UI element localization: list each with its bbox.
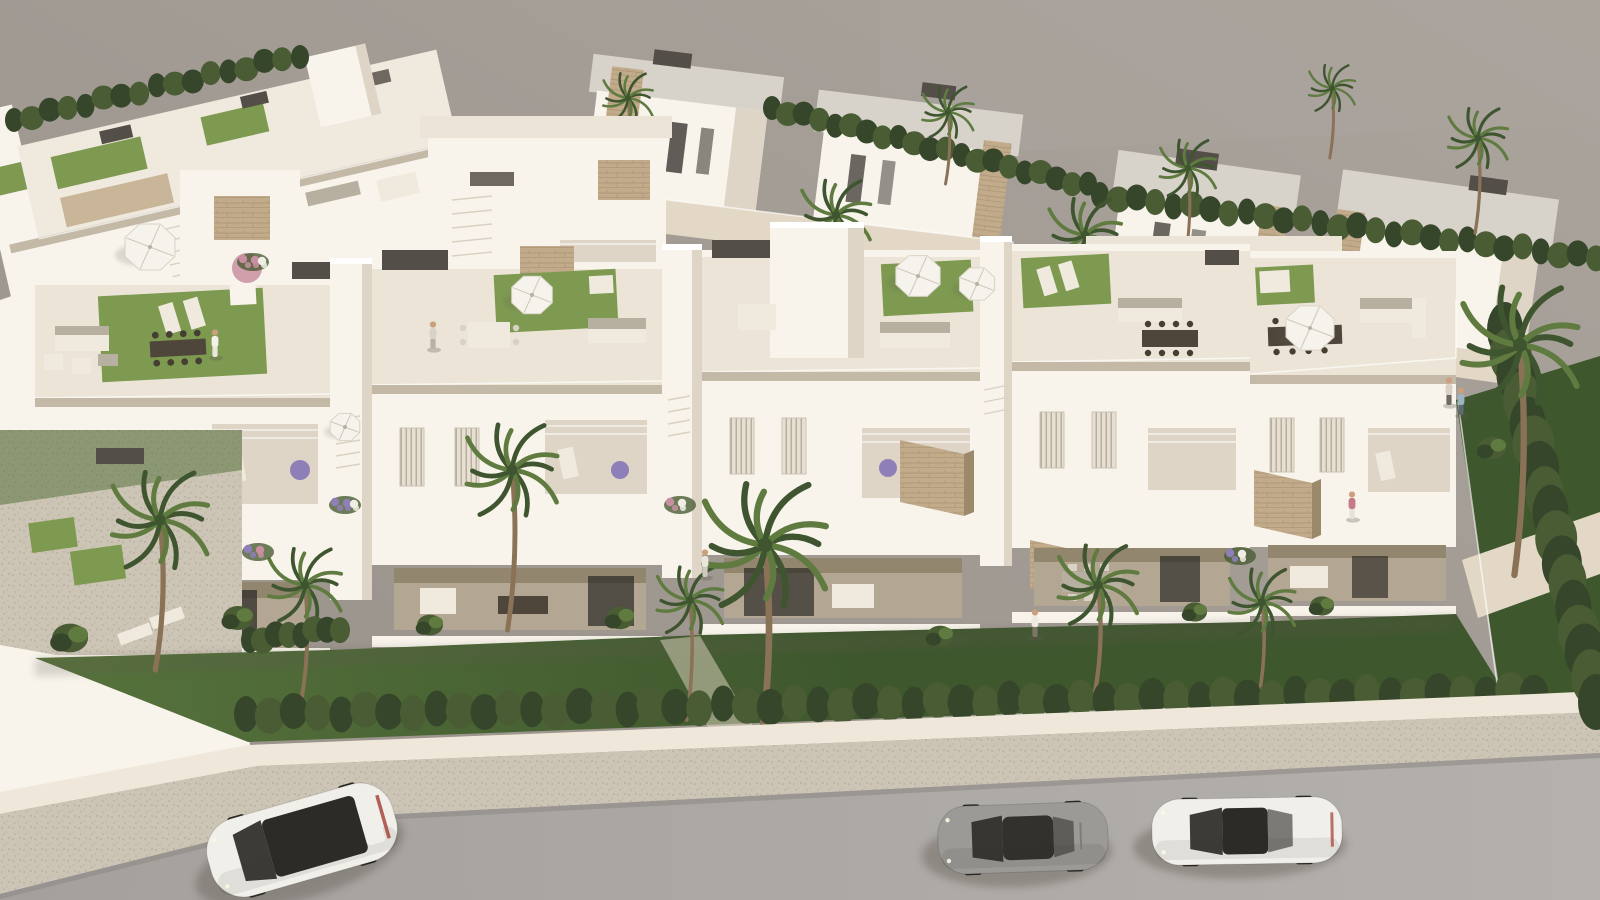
- hedge-bush: [1145, 189, 1165, 215]
- balcony: [1148, 428, 1236, 490]
- flowers: [666, 498, 674, 506]
- hedge-bush: [686, 690, 712, 726]
- person-legs: [1349, 508, 1354, 519]
- flowers: [239, 255, 247, 263]
- flowers: [244, 545, 252, 553]
- hedge-bush: [129, 82, 149, 106]
- flowers: [250, 552, 256, 558]
- person-legs: [1032, 626, 1037, 637]
- person-head: [430, 321, 436, 327]
- hedge-bush: [711, 686, 735, 722]
- person-torso: [430, 328, 437, 339]
- hedge-bush: [948, 684, 976, 720]
- person-head: [1349, 491, 1355, 497]
- car-white-sedan: [1132, 795, 1346, 881]
- hedge-bush: [757, 689, 785, 725]
- roof-lawn: [1021, 254, 1111, 309]
- person-legs: [702, 566, 707, 577]
- hedge-bush: [852, 683, 880, 719]
- hedge-bush: [902, 687, 926, 723]
- hedge-bush: [330, 617, 350, 643]
- flowers: [1232, 556, 1238, 562]
- roof-pergola: [712, 240, 770, 258]
- person-torso: [1446, 384, 1453, 395]
- person-torso: [1458, 394, 1465, 405]
- roof-daybed: [738, 304, 776, 330]
- flower-bed: [237, 253, 269, 271]
- hedge-bush: [110, 84, 132, 108]
- townhouse-unit-4: [1012, 244, 1250, 623]
- hedge-bush: [1493, 235, 1515, 261]
- flower-bed: [1224, 547, 1256, 565]
- flower-bed: [242, 543, 274, 561]
- hedge-bush: [566, 688, 594, 724]
- person-head: [1032, 609, 1038, 615]
- hedge-bush: [234, 696, 258, 732]
- hedge-bush: [1439, 228, 1459, 254]
- lawn-patch: [70, 545, 126, 586]
- flowers: [331, 498, 339, 506]
- person-legs: [1446, 394, 1451, 405]
- patio-door: [1160, 556, 1200, 602]
- person-torso: [702, 556, 709, 567]
- hedge-bush: [400, 695, 426, 731]
- flowers: [245, 262, 251, 268]
- car-roof-glass: [1222, 808, 1268, 855]
- hedge-bush: [806, 687, 830, 723]
- flowers: [353, 505, 359, 511]
- hedge-bush: [1273, 207, 1295, 233]
- hedge-bush: [58, 96, 78, 120]
- hedge-bush: [1311, 210, 1329, 236]
- flowers: [345, 505, 351, 511]
- hedge-bush: [877, 685, 903, 721]
- flower-bed: [664, 496, 696, 514]
- flowers: [258, 552, 264, 558]
- hedge-bush: [1346, 212, 1368, 238]
- hedge-bush: [495, 689, 521, 725]
- person-legs: [430, 338, 435, 349]
- hedge-bush: [280, 693, 308, 729]
- flowers: [337, 505, 343, 511]
- hedge-bush: [1238, 198, 1256, 224]
- townhouse-unit-5: [1250, 251, 1456, 616]
- balcony: [545, 420, 647, 494]
- hedge-bush: [1126, 184, 1148, 210]
- hedge-bush: [1199, 196, 1221, 222]
- hedge-bush: [272, 47, 292, 71]
- person-head: [702, 549, 708, 555]
- hedge-bush: [661, 689, 689, 725]
- hedge-bush: [182, 69, 204, 93]
- shuttered-window: [1320, 418, 1344, 472]
- shuttered-window: [730, 418, 754, 474]
- car-cabin-glass: [1002, 815, 1054, 860]
- daybed: [832, 584, 874, 608]
- hedge-bush: [616, 692, 640, 728]
- shuttered-window: [1270, 418, 1294, 472]
- hedge-bush: [1458, 226, 1476, 252]
- hedge-bush: [782, 684, 808, 720]
- hedge-bush: [1513, 233, 1533, 259]
- shuttered-window: [1040, 412, 1064, 468]
- architectural-render: [0, 0, 1600, 900]
- hedge-bush: [39, 98, 61, 122]
- flowers: [1240, 556, 1246, 562]
- scene: [0, 0, 1600, 900]
- person-head: [1446, 377, 1452, 383]
- hedge-bush: [305, 695, 331, 731]
- person-torso: [1349, 498, 1356, 509]
- hedge-bush: [1219, 200, 1239, 226]
- hedge-bush: [1292, 205, 1312, 231]
- hedge-bush: [1567, 240, 1589, 266]
- hedge-bush: [591, 690, 617, 726]
- daybed: [420, 588, 456, 614]
- car-windshield: [1190, 808, 1223, 856]
- roof-ac-unit: [1205, 250, 1239, 265]
- hedge-bush: [329, 697, 353, 733]
- patio-door: [1352, 556, 1388, 598]
- hedge-bush: [1164, 193, 1182, 219]
- car-taillight: [1330, 812, 1334, 846]
- hedge-bush: [520, 691, 544, 727]
- balcony: [1368, 428, 1450, 492]
- flowers: [253, 262, 259, 268]
- car-windshield: [971, 816, 1003, 863]
- shuttered-window: [782, 418, 806, 474]
- hedge-bush: [999, 155, 1019, 179]
- hedge-bush: [1366, 217, 1386, 243]
- flowers: [680, 505, 686, 511]
- hedge-bush: [291, 45, 309, 69]
- person-head: [1458, 387, 1464, 393]
- hedge-bush: [425, 691, 449, 727]
- car-rear-window: [1268, 808, 1293, 852]
- shuttered-window: [400, 428, 424, 486]
- hedge-bush: [471, 694, 499, 730]
- hedge-bush: [1138, 678, 1166, 714]
- hedge-bush: [253, 49, 275, 73]
- person-head: [212, 329, 218, 335]
- car-rear-window: [1053, 816, 1075, 857]
- flower-bed: [329, 496, 361, 514]
- hedge-bush: [1068, 679, 1094, 715]
- person-legs: [1458, 404, 1463, 415]
- hedge-bush: [1420, 224, 1442, 250]
- flowers: [1226, 549, 1234, 557]
- hedge-bush: [201, 61, 221, 85]
- person-legs: [212, 346, 217, 357]
- roof-sofa: [1118, 298, 1182, 322]
- bbq-grill: [96, 448, 144, 464]
- person-torso: [1032, 616, 1039, 627]
- stair-tower: [662, 244, 702, 578]
- hedge-bush: [1532, 238, 1550, 264]
- hedge-bush: [1385, 221, 1403, 247]
- flowers: [672, 505, 678, 511]
- roof-ac-unit: [292, 262, 332, 279]
- lounger: [1290, 566, 1328, 588]
- shuttered-window: [1092, 412, 1116, 468]
- left-garden: [0, 430, 250, 795]
- roof-sofa: [880, 322, 950, 348]
- roof-sofa: [588, 318, 646, 343]
- roof-lawn: [1255, 265, 1315, 306]
- flowers: [261, 262, 267, 268]
- hedge-bush: [997, 681, 1021, 717]
- roof-pergola: [382, 250, 448, 270]
- person-torso: [212, 336, 219, 347]
- hedge-bush: [375, 694, 403, 730]
